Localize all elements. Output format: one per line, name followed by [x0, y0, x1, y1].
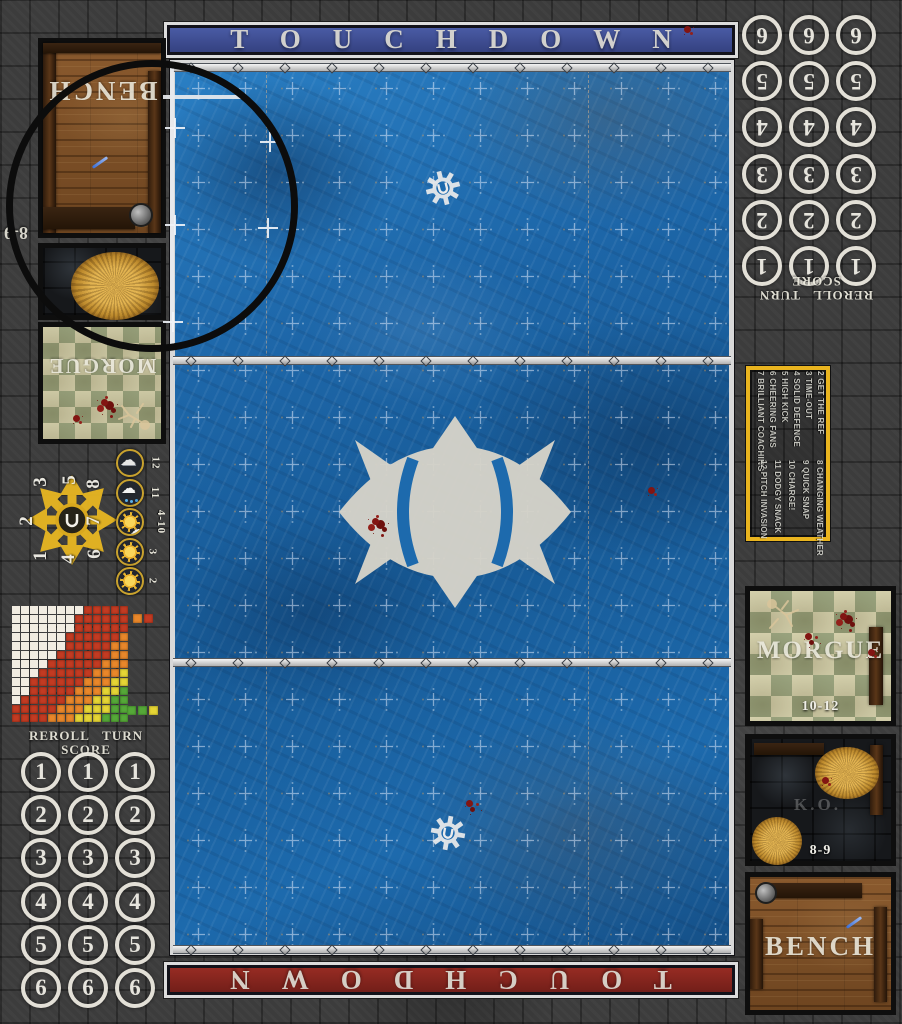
sun-small-cloud-icon: ☁ [116, 538, 144, 566]
rivet-stud [655, 62, 666, 73]
rivet-stud [561, 355, 572, 366]
range-cell [93, 624, 101, 632]
range-cell [57, 678, 65, 686]
range-cell [57, 615, 65, 623]
range-legend-mid [133, 614, 153, 623]
range-cell [57, 651, 65, 659]
range-cell [39, 642, 47, 650]
range-cell [39, 660, 47, 668]
blood-splatter [840, 613, 847, 620]
range-cell [12, 687, 20, 695]
track-circle: 3 [836, 154, 876, 194]
range-cell [111, 696, 119, 704]
track-circle: 4 [742, 107, 782, 147]
track-circle: 1 [115, 752, 155, 792]
range-cell [21, 714, 29, 722]
rivet-stud [420, 944, 431, 955]
rivet-stud [702, 62, 713, 73]
range-cell [84, 615, 92, 623]
rivet-stud [185, 355, 196, 366]
range-cell [93, 651, 101, 659]
cloud-icon: ☁ [120, 450, 136, 469]
range-cell [102, 714, 110, 722]
rivet-stud [514, 62, 525, 73]
range-cell [75, 633, 83, 641]
range-cell [84, 678, 92, 686]
ko-label: K.O. [794, 795, 841, 815]
range-cell [102, 633, 110, 641]
range-cell [93, 615, 101, 623]
range-cell [48, 615, 56, 623]
range-cell [75, 651, 83, 659]
weather-table: ☁12☁11☁4-10☁32 [116, 449, 170, 599]
weather-roll-label: 2 [146, 578, 158, 585]
range-cell [75, 696, 83, 704]
range-cell [57, 606, 65, 614]
range-cell [48, 669, 56, 677]
range-cell [48, 606, 56, 614]
storm-cloud-icon: ☁ [116, 449, 144, 477]
weather-roll-label: 4-10 [155, 510, 167, 534]
range-cell [30, 669, 38, 677]
rivet-stud [279, 355, 290, 366]
range-cell [30, 714, 38, 722]
range-cell [57, 660, 65, 668]
rivet-stud [608, 355, 619, 366]
track-circle: 4 [789, 107, 829, 147]
range-cell [21, 669, 29, 677]
range-cell [66, 678, 74, 686]
rivet-stud [467, 657, 478, 668]
cloud-icon: ☁ [130, 522, 144, 536]
range-cell [102, 687, 110, 695]
rivet-stud [420, 355, 431, 366]
range-cell [39, 651, 47, 659]
third-line-lower [173, 658, 731, 667]
rain-cloud-icon: ☁ [116, 479, 144, 507]
blood-splatter [648, 487, 655, 494]
cloud-icon: ☁ [134, 556, 144, 566]
range-cell [75, 642, 83, 650]
range-cell [111, 633, 119, 641]
range-cell [75, 624, 83, 632]
kickoff-entry: 11 DODGY SNACK [770, 460, 784, 538]
track-circle: 1 [68, 752, 108, 792]
grid-cross-icon [165, 118, 185, 138]
range-cell [21, 687, 29, 695]
cloud-icon: ☁ [121, 479, 136, 497]
range-cell [66, 606, 74, 614]
grid-cross-icon [258, 218, 278, 238]
range-cell [93, 687, 101, 695]
range-cell [75, 606, 83, 614]
range-cell [48, 624, 56, 632]
rivet-stud [279, 657, 290, 668]
grid-cross-icon [163, 312, 183, 332]
range-cell [75, 678, 83, 686]
morgue-range-label: 10-12 [750, 699, 891, 715]
wide-zone-line-right [588, 65, 589, 950]
range-cell [30, 678, 38, 686]
range-cell [66, 696, 74, 704]
range-cell [102, 615, 110, 623]
grid-cross-icon [165, 215, 185, 235]
range-cell [39, 606, 47, 614]
kickoff-entry: 6 CHEERING FANS [766, 371, 778, 455]
range-cell [102, 669, 110, 677]
endzone-line-top [173, 63, 731, 72]
track-header-right: REROLL TURN SCORE [737, 274, 895, 302]
range-cell [66, 660, 74, 668]
track-circle: 3 [68, 838, 108, 878]
track-circle: 2 [115, 795, 155, 835]
legend-swatch [144, 614, 153, 623]
range-cell [111, 669, 119, 677]
touchdown-banner-top-label: TOUCHDOWN [167, 25, 735, 54]
range-cell [39, 678, 47, 686]
range-cell [39, 615, 47, 623]
range-cell [102, 642, 110, 650]
rivet-stud [655, 355, 666, 366]
kickoff-entry: 10 CHARGE! [784, 460, 798, 538]
legend-swatch [138, 706, 147, 715]
range-cell [39, 624, 47, 632]
rivet-stud [608, 657, 619, 668]
rivet-stud [326, 657, 337, 668]
track-circle: 2 [789, 200, 829, 240]
kickoff-rows-8-12: 8 CHANGING WEATHER9 QUICK SNAP10 CHARGE!… [752, 460, 826, 538]
skeleton-icon [758, 595, 806, 635]
range-cell [102, 624, 110, 632]
magnified-sideline [170, 67, 174, 345]
track-circle: 6 [742, 15, 782, 55]
range-ruler-chart [12, 606, 128, 722]
touchdown-banner-bottom: TOUCHDOWN [164, 962, 738, 998]
range-cell [30, 633, 38, 641]
range-cell [39, 669, 47, 677]
range-cell [66, 615, 74, 623]
track-circle: 6 [836, 15, 876, 55]
touchdown-banner-top: TOUCHDOWN [164, 22, 738, 58]
range-cell [48, 651, 56, 659]
range-cell [111, 606, 119, 614]
rivet-stud [232, 944, 243, 955]
weather-row: ☁12 [116, 449, 170, 477]
range-cell [75, 660, 83, 668]
rivet-stud [561, 657, 572, 668]
range-legend-bottom [127, 706, 158, 715]
range-cell [84, 660, 92, 668]
range-cell [66, 687, 74, 695]
range-cell [75, 705, 83, 713]
range-cell [66, 624, 74, 632]
range-cell [30, 615, 38, 623]
track-circle: 3 [789, 154, 829, 194]
range-cell [111, 651, 119, 659]
range-cell [30, 642, 38, 650]
legend-swatch [133, 614, 142, 623]
range-cell [84, 696, 92, 704]
range-cell [12, 696, 20, 704]
rivet-stud [373, 657, 384, 668]
track-header-left: REROLL TURN SCORE [10, 729, 162, 757]
range-cell [21, 633, 29, 641]
rivet-stud [279, 944, 290, 955]
rivet-stud [608, 62, 619, 73]
blood-splatter [805, 633, 812, 640]
track-circle: 1 [21, 752, 61, 792]
range-cell [75, 615, 83, 623]
dugout-bench-right: BENCH [745, 872, 896, 1015]
range-cell [102, 660, 110, 668]
range-cell [75, 669, 83, 677]
range-cell [57, 696, 65, 704]
wood-strip [754, 743, 824, 755]
range-cell [111, 660, 119, 668]
blood-splatter [822, 777, 829, 784]
range-cell [93, 642, 101, 650]
track-circle: 2 [836, 200, 876, 240]
range-cell [84, 624, 92, 632]
track-circle: 2 [68, 795, 108, 835]
range-cell [21, 615, 29, 623]
center-spiked-ball-logo [325, 412, 585, 612]
range-cell [21, 624, 29, 632]
range-cell [21, 678, 29, 686]
range-cell [12, 660, 20, 668]
hay-pile [815, 747, 879, 799]
bench-plank [43, 43, 161, 53]
range-cell [84, 642, 92, 650]
track-circle: 3 [21, 838, 61, 878]
blood-splatter [684, 26, 691, 33]
range-cell [30, 705, 38, 713]
weather-roll-label: 12 [150, 457, 162, 470]
gear-icon [426, 811, 470, 855]
rivet-stud [326, 62, 337, 73]
range-cell [66, 642, 74, 650]
dugout-morgue-right: MORGUE 10-12 [745, 586, 896, 726]
rivet-stud [326, 944, 337, 955]
bench-plank [766, 883, 862, 898]
weather-row: ☁4-10 [116, 508, 170, 536]
range-cell [66, 651, 74, 659]
range-cell [93, 678, 101, 686]
range-cell [12, 678, 20, 686]
range-cell [48, 678, 56, 686]
track-circle: 5 [836, 61, 876, 101]
range-cell [120, 642, 128, 650]
range-cell [48, 660, 56, 668]
ko-range-label: 8-9 [750, 843, 891, 859]
range-cell [84, 705, 92, 713]
dugout-ko-right: K.O. 8-9 [745, 734, 896, 866]
range-cell [120, 714, 128, 722]
range-cell [75, 687, 83, 695]
range-cell [93, 669, 101, 677]
morgue-left-label: MORGUE [43, 353, 161, 378]
rivet-stud [232, 62, 243, 73]
track-circle: 5 [742, 61, 782, 101]
track-circle: 4 [836, 107, 876, 147]
rivet-stud [279, 62, 290, 73]
bench-right-label: BENCH [750, 931, 891, 962]
grid-cross-icon [260, 132, 280, 152]
range-cell [102, 606, 110, 614]
range-cell [93, 705, 101, 713]
range-cell [39, 705, 47, 713]
rivet-stud [232, 657, 243, 668]
scatter-template-star [17, 465, 127, 575]
range-cell [39, 696, 47, 704]
rivet-stud [467, 355, 478, 366]
range-cell [12, 669, 20, 677]
range-cell [12, 705, 20, 713]
range-cell [12, 651, 20, 659]
rivet-stud [561, 944, 572, 955]
range-cell [120, 615, 128, 623]
track-circle: 6 [115, 968, 155, 1008]
range-cell [120, 696, 128, 704]
range-cell [120, 651, 128, 659]
track-circle: 5 [68, 925, 108, 965]
rivet-stud [326, 355, 337, 366]
rivet-stud [373, 944, 384, 955]
range-cell [84, 714, 92, 722]
track-circle: 4 [68, 882, 108, 922]
magnified-line [163, 95, 293, 99]
rivet-stud [702, 355, 713, 366]
range-cell [21, 705, 29, 713]
track-circle: 3 [115, 838, 155, 878]
range-cell [12, 606, 20, 614]
track-circle: 2 [742, 200, 782, 240]
rivet-stud [185, 944, 196, 955]
range-cell [57, 642, 65, 650]
weather-row: ☁11 [116, 479, 170, 507]
range-cell [48, 696, 56, 704]
range-cell [12, 642, 20, 650]
range-cell [48, 687, 56, 695]
range-cell [21, 660, 29, 668]
range-cell [21, 606, 29, 614]
range-cell [111, 687, 119, 695]
range-cell [57, 714, 65, 722]
rivet-stud [702, 944, 713, 955]
range-cell [84, 606, 92, 614]
range-cell [57, 633, 65, 641]
range-cell [30, 660, 38, 668]
range-cell [120, 678, 128, 686]
range-cell [111, 678, 119, 686]
range-cell [48, 705, 56, 713]
blood-splatter [73, 415, 80, 422]
range-cell [120, 633, 128, 641]
range-cell [84, 633, 92, 641]
rivet-stud [373, 62, 384, 73]
range-cell [48, 714, 56, 722]
game-mat: { "banners": { "top_label": "TOUCHDOWN",… [0, 0, 902, 1024]
range-cell [12, 624, 20, 632]
range-cell [93, 606, 101, 614]
range-cell [57, 624, 65, 632]
track-circle: 6 [789, 15, 829, 55]
kickoff-entry: 12 PITCH INVASION [756, 460, 770, 538]
rivet-stud [608, 944, 619, 955]
blood-splatter [466, 800, 473, 807]
rivet-stud [514, 657, 525, 668]
range-cell [84, 669, 92, 677]
range-cell [21, 696, 29, 704]
range-cell [21, 642, 29, 650]
range-cell [75, 714, 83, 722]
track-circle: 5 [789, 61, 829, 101]
range-cell [39, 687, 47, 695]
metal-disc [755, 882, 777, 904]
blood-splatter [868, 649, 875, 656]
weather-row: ☁3 [116, 538, 170, 566]
range-cell [30, 651, 38, 659]
range-cell [120, 687, 128, 695]
range-cell [48, 633, 56, 641]
range-cell [12, 714, 20, 722]
range-cell [93, 714, 101, 722]
range-cell [102, 651, 110, 659]
range-cell [84, 651, 92, 659]
track-circle: 6 [21, 968, 61, 1008]
range-cell [57, 669, 65, 677]
track-circle: 6 [68, 968, 108, 1008]
range-cell [93, 633, 101, 641]
track-circle: 2 [21, 795, 61, 835]
range-cell [39, 714, 47, 722]
third-line-upper [173, 356, 731, 365]
weather-row: 2 [116, 567, 170, 595]
track-circle: 5 [115, 925, 155, 965]
range-cell [12, 615, 20, 623]
range-cell [120, 669, 128, 677]
kickoff-entry: 2 GET THE REF [814, 371, 826, 455]
range-cell [93, 660, 101, 668]
range-cell [102, 705, 110, 713]
range-cell [48, 642, 56, 650]
range-cell [120, 624, 128, 632]
rivet-stud [373, 355, 384, 366]
range-cell [111, 642, 119, 650]
track-circle: 4 [115, 882, 155, 922]
range-cell [120, 660, 128, 668]
kickoff-rows-2-7: 2 GET THE REF3 TIME-OUT4 SOLID DEFENCE5 … [752, 371, 826, 455]
sun-icon [120, 571, 140, 591]
track-circle: 3 [742, 154, 782, 194]
range-cell [39, 633, 47, 641]
sun-icon [116, 567, 144, 595]
raindrops-icon [125, 499, 128, 502]
range-cell [66, 669, 74, 677]
legend-swatch [149, 706, 158, 715]
rivet-stud [467, 62, 478, 73]
quill-icon [846, 916, 862, 929]
kickoff-entry: 7 BRILLIANT COACHING [754, 371, 766, 455]
range-cell [30, 687, 38, 695]
blood-splatter [372, 518, 379, 525]
track-circle: 5 [21, 925, 61, 965]
range-cell [102, 678, 110, 686]
kickoff-entry: 9 QUICK SNAP [798, 460, 812, 538]
rivet-stud [420, 657, 431, 668]
rivet-stud [702, 657, 713, 668]
range-cell [111, 705, 119, 713]
